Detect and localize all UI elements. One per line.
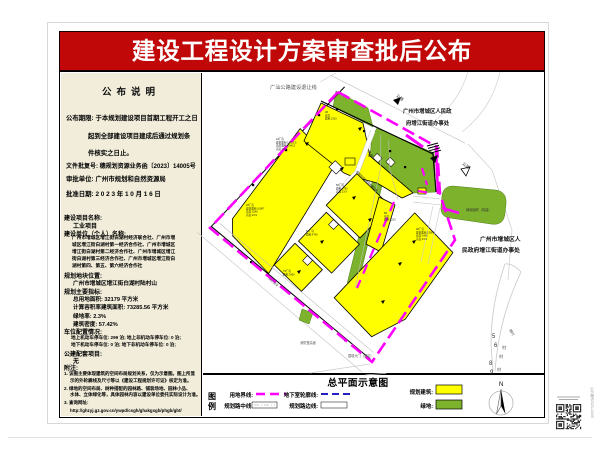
svg-text:围墙大门（镂空）: 围墙大门（镂空）	[348, 353, 374, 358]
svg-text:例: 例	[208, 401, 216, 411]
svg-text:高度:23.9: 高度:23.9	[336, 190, 348, 194]
svg-text:5: 5	[492, 334, 496, 340]
svg-text:面积:3950: 面积:3950	[283, 272, 295, 276]
svg-text:图: 图	[208, 392, 216, 401]
svg-text:用地界线:: 用地界线:	[230, 391, 254, 399]
svg-text:地下室轮廓线:: 地下室轮廓线:	[284, 391, 318, 399]
svg-text:配套: 配套	[368, 153, 374, 157]
svg-text:绿地:: 绿地:	[420, 402, 433, 410]
svg-text:广州市增城区人民政: 广州市增城区人民政	[403, 107, 452, 115]
svg-text:9: 9	[490, 370, 494, 376]
svg-text:高度:23.9: 高度:23.9	[416, 237, 428, 241]
svg-text:规划路边线:: 规划路边线:	[289, 402, 318, 410]
svg-text:民政府增江街道办事处: 民政府增江街道办事处	[462, 246, 520, 254]
svg-text:高度:23.9: 高度:23.9	[246, 213, 258, 217]
svg-text:高度:23.9: 高度:23.9	[276, 147, 288, 151]
svg-text:总平面示意图: 总平面示意图	[327, 376, 388, 389]
svg-text:规划路中线:: 规划路中线:	[224, 402, 253, 410]
svg-text:面积:2210: 面积:2210	[384, 218, 396, 222]
svg-text:村: 村	[497, 366, 501, 372]
svg-text:村: 村	[499, 353, 503, 359]
svg-text:N: N	[499, 382, 503, 388]
svg-text:绿地面积（待建）: 绿地面积（待建）	[466, 207, 492, 212]
svg-text:面积:2310: 面积:2310	[325, 117, 337, 121]
svg-text:面积:4790: 面积:4790	[306, 232, 318, 236]
svg-text:广州市增城区人: 广州市增城区人	[480, 235, 521, 243]
svg-text:公示编号2023-14005: 公示编号2023-14005	[590, 387, 595, 418]
svg-text:消防登高面: 消防登高面	[300, 340, 316, 345]
svg-text:横村: 横村	[508, 328, 516, 337]
svg-text:府增江街道办事处: 府增江街道办事处	[406, 119, 450, 127]
svg-text:村: 村	[502, 344, 506, 350]
svg-text:广汕公路建设退让线: 广汕公路建设退让线	[270, 83, 317, 91]
svg-text:规划建筑:: 规划建筑:	[410, 388, 434, 396]
